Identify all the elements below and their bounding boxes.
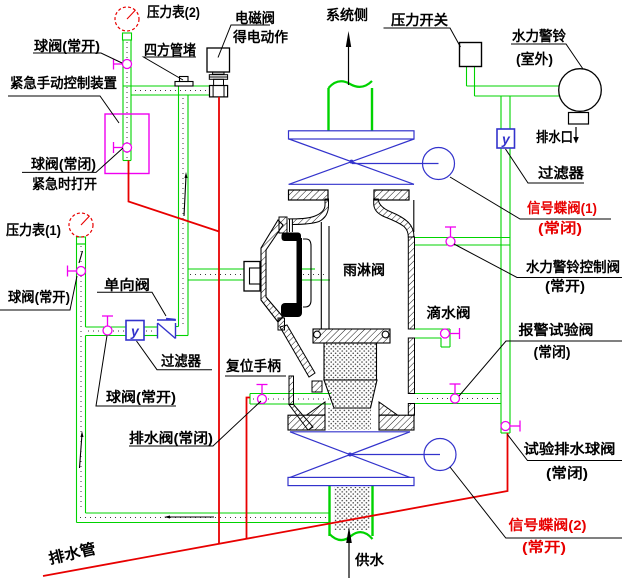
svg-text:球阀(常开): 球阀(常开) xyxy=(34,38,100,54)
svg-text:得电动作: 得电动作 xyxy=(232,29,288,45)
svg-text:供水: 供水 xyxy=(354,552,385,568)
svg-text:过滤器: 过滤器 xyxy=(538,165,585,181)
svg-text:(常闭): (常闭) xyxy=(534,344,571,360)
svg-text:(常开): (常开) xyxy=(545,278,585,294)
svg-text:球阀(常闭): 球阀(常闭) xyxy=(31,156,96,172)
svg-text:(常闭): (常闭) xyxy=(546,465,588,481)
svg-text:雨淋阀: 雨淋阀 xyxy=(343,262,385,278)
svg-text:报警试验阀: 报警试验阀 xyxy=(519,322,594,338)
svg-text:球阀(常开): 球阀(常开) xyxy=(8,289,70,305)
svg-text:滴水阀: 滴水阀 xyxy=(427,305,471,321)
svg-text:信号蝶阀(1): 信号蝶阀(1) xyxy=(527,200,597,216)
svg-text:四方管堵: 四方管堵 xyxy=(144,42,196,58)
svg-text:紧急时打开: 紧急时打开 xyxy=(32,176,97,192)
svg-text:球阀(常开): 球阀(常开) xyxy=(106,389,176,405)
svg-text:水力警铃控制阀: 水力警铃控制阀 xyxy=(526,259,620,275)
svg-text:电磁阀: 电磁阀 xyxy=(235,10,275,26)
svg-text:过滤器: 过滤器 xyxy=(161,353,202,369)
svg-text:水力警铃: 水力警铃 xyxy=(512,28,566,44)
svg-text:压力开关: 压力开关 xyxy=(391,12,448,28)
svg-text:试验排水球阀: 试验排水球阀 xyxy=(524,441,616,457)
svg-text:(常开): (常开) xyxy=(522,539,566,555)
svg-text:紧急手动控制装置: 紧急手动控制装置 xyxy=(10,75,117,91)
svg-text:y: y xyxy=(501,131,511,147)
svg-text:复位手柄: 复位手柄 xyxy=(225,358,281,374)
svg-text:排水阀(常闭): 排水阀(常闭) xyxy=(129,430,213,446)
svg-text:排水口: 排水口 xyxy=(536,129,573,145)
svg-text:信号蝶阀(2): 信号蝶阀(2) xyxy=(509,517,587,533)
svg-text:压力表(1): 压力表(1) xyxy=(6,222,61,238)
svg-text:y: y xyxy=(130,323,140,339)
svg-text:(室外): (室外) xyxy=(516,51,553,67)
svg-text:系统侧: 系统侧 xyxy=(326,7,368,23)
svg-text:(常闭): (常闭) xyxy=(538,220,582,236)
svg-text:单向阀: 单向阀 xyxy=(104,277,150,293)
svg-text:压力表(2): 压力表(2) xyxy=(147,4,200,20)
